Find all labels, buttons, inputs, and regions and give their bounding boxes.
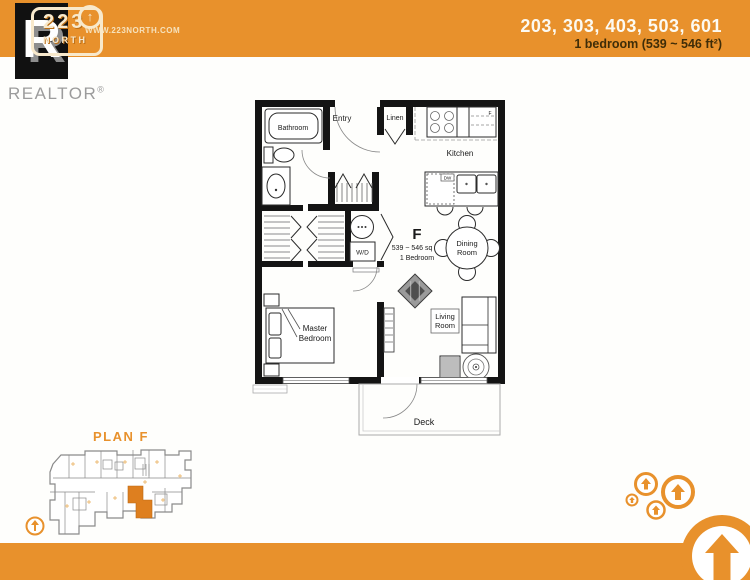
mid-closet [307,216,344,261]
deck-outline [359,384,500,435]
unit-subtitle: 1 bedroom (539 ~ 546 ft²) [520,37,722,52]
unit-area: 539 ~ 546 sq ft [392,245,439,252]
brand-logo-name: NORTH [43,35,88,45]
sofa [462,297,496,353]
bathroom-vanity [262,167,290,205]
site-plan [45,448,235,548]
north-arrow-icon [27,518,44,535]
living-label-1: Living [435,312,455,321]
toilet [264,147,294,163]
plan-title: PLAN F [93,429,149,444]
pocket-door [353,268,379,272]
arrow-badge-cluster [618,458,750,580]
arrow-up-badge-corner [681,515,750,580]
dining-label-1: Dining [456,239,477,248]
arrow-up-badge-small [648,502,665,519]
arrow-up-badge-large [663,477,693,507]
deck-door-arc [383,384,417,418]
kitchen-label: Kitchen [447,149,474,158]
planter [253,385,287,393]
linen-label: Linen [386,115,403,122]
fridge-label: F [488,111,491,117]
wd-door-chevron [381,214,393,260]
floor-plan: Bathroom Entry Linen [245,95,510,445]
stove [427,107,457,137]
deck-doorway [381,377,419,384]
unit-numbers: 203, 303, 403, 503, 601 [520,16,722,36]
master-label-2: Bedroom [299,334,332,343]
brochure-page: WWW.223NORTH.COM 203, 303, 403, 503, 601… [0,0,750,580]
dining-label-2: Room [457,248,477,257]
built-in-cabinet [384,308,394,352]
realtor-name: REALTOR [8,84,97,103]
unit-type: 1 Bedroom [400,255,434,262]
speaker [463,354,489,380]
brand-logo: 223 NORTH ↑ [31,7,103,56]
fridge [469,107,496,137]
fireplace [398,274,432,308]
master-label-1: Master [303,324,328,333]
arrow-up-icon: ↑ [78,5,102,29]
kitchen-island [425,172,498,215]
kitchen-counter [457,107,469,137]
header-unit-info: 203, 303, 403, 503, 601 1 bedroom (539 ~… [520,16,722,52]
arrow-up-badge-medium [636,474,657,495]
unit-letter: F [412,226,421,243]
living-window [421,378,487,384]
bedroom-window [283,378,349,384]
registered-mark: ® [97,84,105,94]
entry-label: Entry [333,114,352,123]
header-bar: WWW.223NORTH.COM 203, 303, 403, 503, 601… [0,0,750,57]
bathroom-label: Bathroom [278,125,309,132]
linen-door-chevron [385,129,405,144]
hall-closet [335,174,372,202]
tv-stand [440,356,460,380]
bathroom-door-arc [302,150,330,178]
deck-label: Deck [414,417,435,427]
left-closet [264,216,301,261]
dishwasher-label: DW [444,176,452,181]
arrow-up-badge-tiny [627,495,638,506]
realtor-wordmark: REALTOR® [8,84,105,104]
living-label-2: Room [435,321,455,330]
wd-label: W/D [356,250,369,257]
